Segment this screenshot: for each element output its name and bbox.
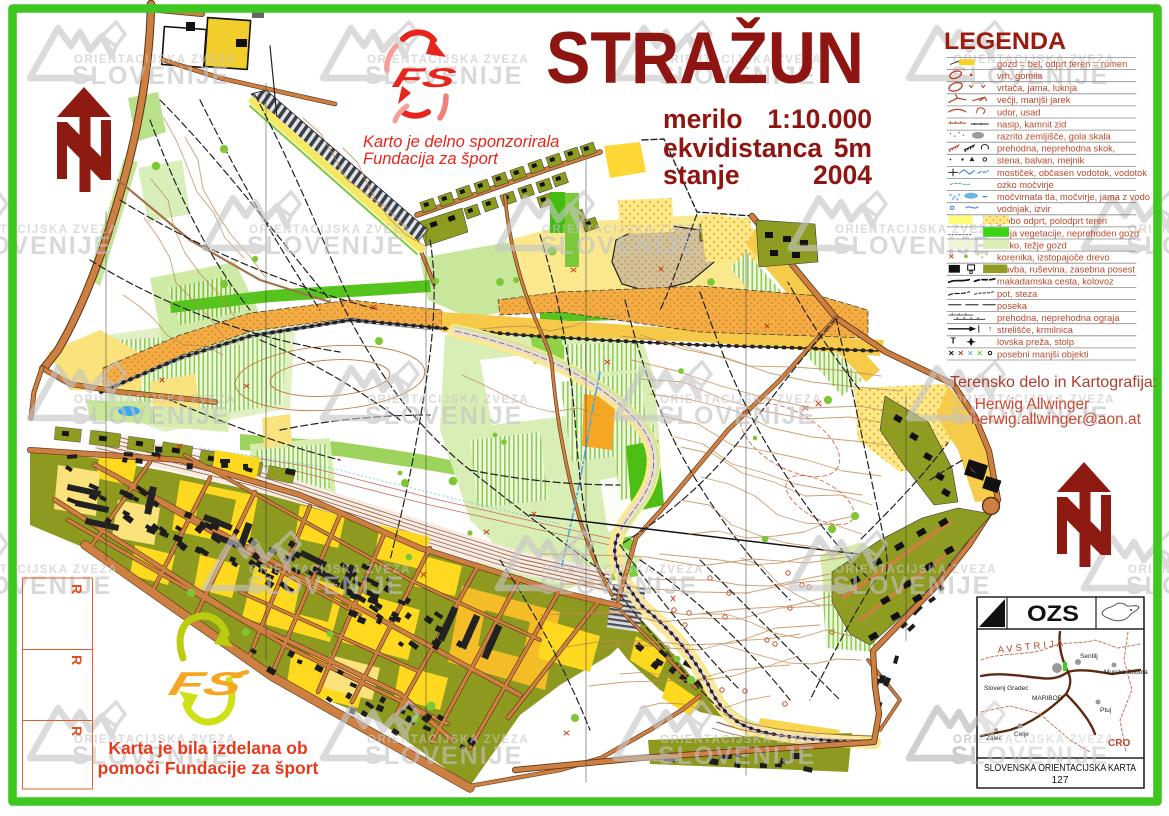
svg-text:vrtača, jama, luknja: vrtača, jama, luknja: [997, 83, 1078, 93]
svg-text:Fundacija za šport: Fundacija za šport: [363, 150, 499, 168]
svg-text:prehodna, neprehodna ograja: prehodna, neprehodna ograja: [997, 313, 1120, 323]
svg-text:R: R: [69, 584, 85, 594]
svg-text:SLOVENIJE: SLOVENIJE: [951, 742, 1109, 770]
svg-text:SLOVENIJE: SLOVENIJE: [247, 572, 405, 600]
svg-text:127: 127: [1052, 775, 1069, 786]
svg-text:meja vegetacije, neprehoden go: meja vegetacije, neprehoden gozd: [997, 228, 1139, 238]
svg-text:SLOVENIJE: SLOVENIJE: [540, 572, 698, 600]
svg-text:pomoči Fundacije za šport: pomoči Fundacije za šport: [98, 758, 319, 778]
svg-text:vrh, gomila: vrh, gomila: [997, 71, 1043, 81]
svg-text:SLOVENIJE: SLOVENIJE: [658, 402, 816, 430]
svg-text:↑: ↑: [988, 324, 992, 333]
svg-text:mostiček, občasen vodotok, vod: mostiček, občasen vodotok, vodotok: [997, 168, 1147, 178]
svg-text:ozko močvirje: ozko močvirje: [997, 180, 1054, 190]
svg-text:močvirnata tla, močvirje, jama: močvirnata tla, močvirje, jama z vodo: [997, 192, 1150, 202]
svg-text:SLOVENIJE: SLOVENIJE: [1126, 572, 1169, 600]
svg-text:SLOVENIJE: SLOVENIJE: [0, 232, 112, 260]
svg-text:R: R: [69, 655, 85, 665]
svg-text:5m: 5m: [834, 133, 872, 163]
svg-text:Slovenj Gradec: Slovenj Gradec: [984, 685, 1029, 692]
svg-text:1:10.000: 1:10.000: [767, 104, 872, 134]
svg-text:MARIBOR: MARIBOR: [1032, 695, 1063, 702]
svg-text:herwig.allwinger@aon.at: herwig.allwinger@aon.at: [971, 411, 1142, 428]
svg-text:SLOVENIJE: SLOVENIJE: [247, 232, 405, 260]
svg-text:Sentilj: Sentilj: [1080, 653, 1098, 660]
svg-text:T: T: [950, 336, 956, 346]
svg-text:ekvidistanca: ekvidistanca: [663, 133, 822, 163]
svg-text:pot, steza: pot, steza: [997, 289, 1038, 299]
svg-text:grobo odprt, polodprt teren: grobo odprt, polodprt teren: [997, 216, 1107, 226]
svg-text:SLOVENIJE: SLOVENIJE: [365, 742, 523, 770]
svg-text:SLOVENIJE: SLOVENIJE: [540, 232, 698, 260]
svg-text:stavba, ruševina, zasebna pose: stavba, ruševina, zasebna posest: [997, 265, 1135, 275]
svg-text:poseka: poseka: [997, 301, 1028, 311]
svg-text:Karta je bila izdelana ob: Karta je bila izdelana ob: [108, 738, 307, 758]
svg-text:strelišče, krmilnica: strelišče, krmilnica: [997, 325, 1074, 335]
svg-text:korenika, izstopajoče drevo: korenika, izstopajoče drevo: [997, 253, 1110, 263]
svg-text:stanje: stanje: [663, 160, 740, 190]
svg-text:STRAŽUN: STRAŽUN: [546, 18, 864, 99]
svg-text:SLOVENIJE: SLOVENIJE: [72, 402, 230, 430]
svg-text:2004: 2004: [813, 160, 872, 190]
svg-text:prehodna, neprehodna skok,: prehodna, neprehodna skok,: [997, 144, 1115, 154]
svg-text:gozd = bel, odprt teren = rume: gozd = bel, odprt teren = rumen: [997, 59, 1127, 69]
svg-text:posebni manjši objekti: posebni manjši objekti: [997, 349, 1088, 359]
svg-text:OZS: OZS: [1027, 601, 1079, 626]
svg-text:Karto je delno sponzorirala: Karto je delno sponzorirala: [363, 133, 559, 151]
svg-text:LEGENDA: LEGENDA: [944, 28, 1066, 55]
svg-text:lovska preža, stolp: lovska preža, stolp: [997, 337, 1074, 347]
svg-text:merilo: merilo: [663, 104, 743, 134]
svg-text:SLOVENIJE: SLOVENIJE: [72, 62, 230, 90]
svg-text:SLOVENIJE: SLOVENIJE: [0, 572, 112, 600]
svg-text:SLOVENIJE: SLOVENIJE: [365, 402, 523, 430]
svg-text:stena, balvan, mejnik: stena, balvan, mejnik: [997, 156, 1085, 166]
svg-text:razrito zemljišče, gola skala: razrito zemljišče, gola skala: [997, 132, 1111, 142]
svg-text:Terensko delo in Kartografija:: Terensko delo in Kartografija:: [950, 374, 1157, 391]
svg-text:Murska Sobota: Murska Sobota: [1104, 669, 1148, 676]
svg-text:FS: FS: [390, 62, 460, 93]
svg-text:vodnjak, izvir: vodnjak, izvir: [997, 204, 1051, 214]
svg-text:R: R: [69, 726, 85, 736]
svg-text:večji, manjši jarek: večji, manjši jarek: [997, 95, 1071, 105]
svg-text:SLOVENIJE: SLOVENIJE: [833, 572, 991, 600]
svg-text:SLOVENIJE: SLOVENIJE: [658, 742, 816, 770]
svg-text:FS: FS: [165, 666, 246, 702]
svg-text:nasip, kamnit zid: nasip, kamnit zid: [997, 119, 1066, 129]
svg-text:Ptuj: Ptuj: [1100, 707, 1111, 714]
svg-text:makadamska cesta, kolovoz: makadamska cesta, kolovoz: [997, 277, 1114, 287]
svg-text:udor, usad: udor, usad: [997, 107, 1040, 117]
